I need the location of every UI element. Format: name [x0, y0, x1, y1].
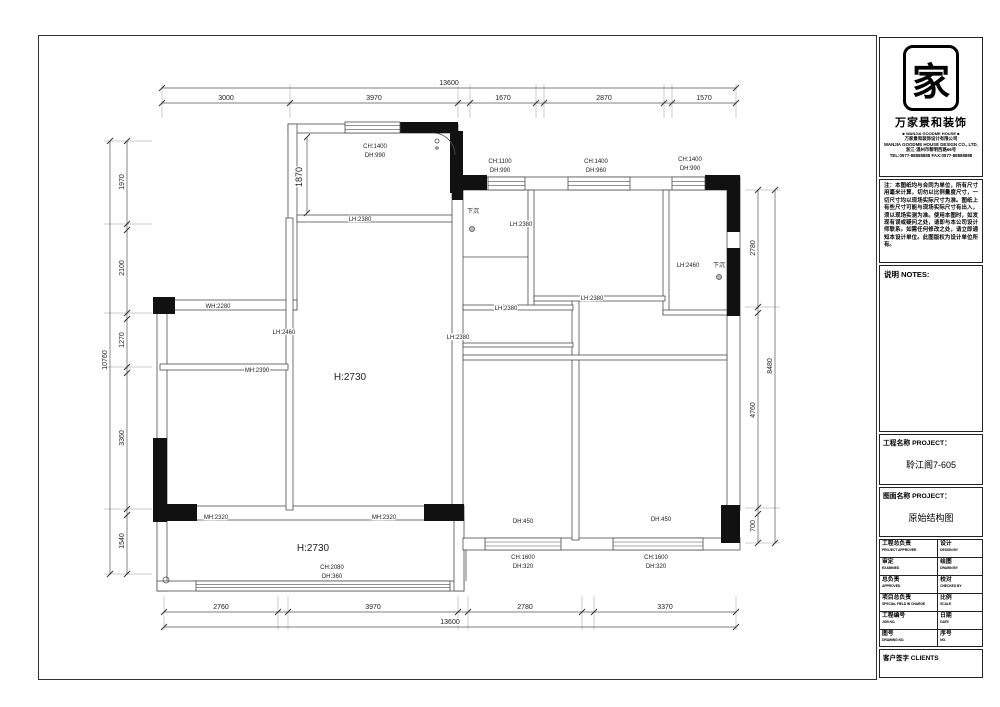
project-name-box: 工程名称 PROJECT： 聆江阁7-605 [879, 434, 983, 485]
plan-label: DH:320 [513, 564, 534, 570]
plan-label: 1870 [294, 167, 304, 187]
cell-label: 校对 [940, 577, 980, 584]
title-block: 家 万家景和装饰 ■ WANJIA GOODME HOUSE ■ 万家景和装饰设… [876, 35, 985, 680]
plan-label: 700 [750, 520, 757, 532]
drawing-value: 原始结构图 [880, 511, 982, 524]
plan-label: LH:2380 [510, 222, 533, 228]
plan-label: DH:990 [490, 168, 511, 174]
cell-sublabel: DRAWING NO. [882, 638, 935, 642]
plan-label: 8480 [767, 358, 774, 374]
plan-label: 13600 [439, 80, 459, 87]
plan-label: 2780 [750, 240, 757, 256]
plan-label: MH:2390 [245, 368, 270, 374]
plan-label: 3970 [366, 95, 382, 102]
cell-label: 图号 [882, 631, 935, 638]
disclaimer-note: 注：本图纸均与合同为单位，所有尺寸用毫米计算，切勿以比例量度尺寸，一切尺寸均以现… [879, 179, 983, 263]
plan-label: 3360 [119, 430, 126, 446]
cell-label: 工程编号 [882, 613, 935, 620]
cell-sublabel: PROJECT APPROVER [882, 548, 935, 552]
plan-label: DH:320 [646, 564, 667, 570]
brand-name: 万家景和装饰 [880, 114, 982, 130]
cell-label: 总负责 [882, 577, 935, 584]
sunken-floor-mark [470, 227, 475, 232]
table-row: 图号DRAWING NO. 序号NO. [880, 630, 982, 647]
plan-label: DH:990 [680, 166, 701, 172]
cell-sublabel: SCALE [940, 602, 980, 606]
drawing-name-box: 图面名称 PROJECT： 原始结构图 [879, 487, 983, 537]
plan-label: LH:2380 [495, 306, 518, 312]
cell-sublabel: DESIGN BY [940, 548, 980, 552]
cell-sublabel: JOB NO. [882, 620, 935, 624]
company-logo-icon: 家 [903, 45, 959, 111]
plan-label: H:2730 [297, 543, 330, 554]
cell-label: 序号 [940, 631, 980, 638]
plan-label: 1570 [696, 95, 712, 102]
table-row: 工程编号JOB NO. 日期DATE [880, 612, 982, 630]
plan-label: LH:2380 [447, 335, 470, 341]
cell-sublabel: EXAMINED [882, 566, 935, 570]
plan-label: LH:2380 [349, 217, 372, 223]
plan-label: 2870 [596, 95, 612, 102]
cell-sublabel: CHECKED BY [940, 584, 980, 588]
signature-table: 工程总负责PROJECT APPROVER 设计DESIGN BY 审定EXAM… [879, 539, 983, 647]
plan-label: 2780 [517, 604, 533, 611]
floor-plan-drawing: 1360030003970167028701570107601970210012… [0, 0, 1000, 707]
table-row: 项目总负责SPECIAL FIELD IN CHARGE 比例SCALE [880, 594, 982, 612]
plan-label: 下沉 [467, 207, 479, 215]
notes-box: 说明 NOTES: [879, 265, 983, 432]
plan-label: LH:2460 [677, 263, 700, 269]
cell-sublabel: DATE [940, 620, 980, 624]
cell-label: 审定 [882, 559, 935, 566]
drawing-label: 图面名称 PROJECT： [880, 488, 982, 502]
cell-sublabel: NO. [940, 638, 980, 642]
plan-label: DH:450 [651, 517, 672, 523]
plan-label: CH:1100 [488, 159, 512, 165]
clients-signature-box: 客户签字 CLIENTS [879, 649, 983, 678]
plan-label: 1670 [495, 95, 511, 102]
cell-label: 日期 [940, 613, 980, 620]
plan-label: H:2730 [334, 372, 367, 383]
plan-label: 3370 [657, 604, 673, 611]
table-row: 总负责APPROVED 校对CHECKED BY [880, 576, 982, 594]
plan-label: 2100 [119, 260, 126, 276]
cell-sublabel: DRAWN BY [940, 566, 980, 570]
cell-label: 绘图 [940, 559, 980, 566]
plan-label: WH:2280 [205, 304, 231, 310]
plan-label: DH:960 [586, 168, 607, 174]
project-value: 聆江阁7-605 [880, 458, 982, 471]
plan-label: LH:2380 [581, 296, 604, 302]
cell-label: 项目总负责 [882, 595, 935, 602]
plan-label: 下沉 [713, 261, 725, 269]
plan-label: CH:1600 [511, 555, 535, 561]
plan-label: DH:450 [513, 519, 534, 525]
plan-label: 1270 [119, 332, 126, 348]
cell-label: 比例 [940, 595, 980, 602]
plan-label: 4760 [750, 402, 757, 418]
plan-label: CH:1600 [644, 555, 668, 561]
plan-label: 1540 [119, 533, 126, 549]
cell-label: 设计 [940, 541, 980, 548]
sunken-floor-mark [717, 275, 722, 280]
plan-label: MH:2320 [204, 515, 229, 521]
plan-label: MH:2320 [372, 515, 397, 521]
cell-label: 工程总负责 [882, 541, 935, 548]
plan-label: 2760 [213, 604, 229, 611]
table-row: 工程总负责PROJECT APPROVER 设计DESIGN BY [880, 540, 982, 558]
table-row: 审定EXAMINED 绘图DRAWN BY [880, 558, 982, 576]
notes-label: 说明 NOTES: [884, 269, 978, 280]
drawing-sheet: 1360030003970167028701570107601970210012… [0, 0, 1000, 707]
plan-label: 3970 [365, 604, 381, 611]
cell-sublabel: SPECIAL FIELD IN CHARGE [882, 602, 935, 606]
plan-label: LH:2460 [273, 330, 296, 336]
plan-label: DH:360 [322, 574, 343, 580]
plan-label: DH:990 [365, 153, 386, 159]
plan-label: 10760 [102, 350, 109, 370]
plan-label: CH:1400 [363, 144, 387, 150]
project-label: 工程名称 PROJECT： [880, 435, 982, 449]
plan-label: CH:1400 [678, 157, 702, 163]
logo-glyph: 家 [912, 51, 950, 106]
plan-label: 3000 [218, 95, 234, 102]
plan-label: CH:2080 [320, 565, 344, 571]
cell-sublabel: APPROVED [882, 584, 935, 588]
plan-label: CH:1400 [584, 159, 608, 165]
plan-label: 1970 [119, 174, 126, 190]
plan-label: 13600 [440, 619, 460, 626]
company-line: TEL:0577-88888888 FAX:0577-88888888 [880, 153, 982, 159]
company-logo-block: 家 万家景和装饰 ■ WANJIA GOODME HOUSE ■ 万家景和装饰设… [879, 37, 983, 177]
